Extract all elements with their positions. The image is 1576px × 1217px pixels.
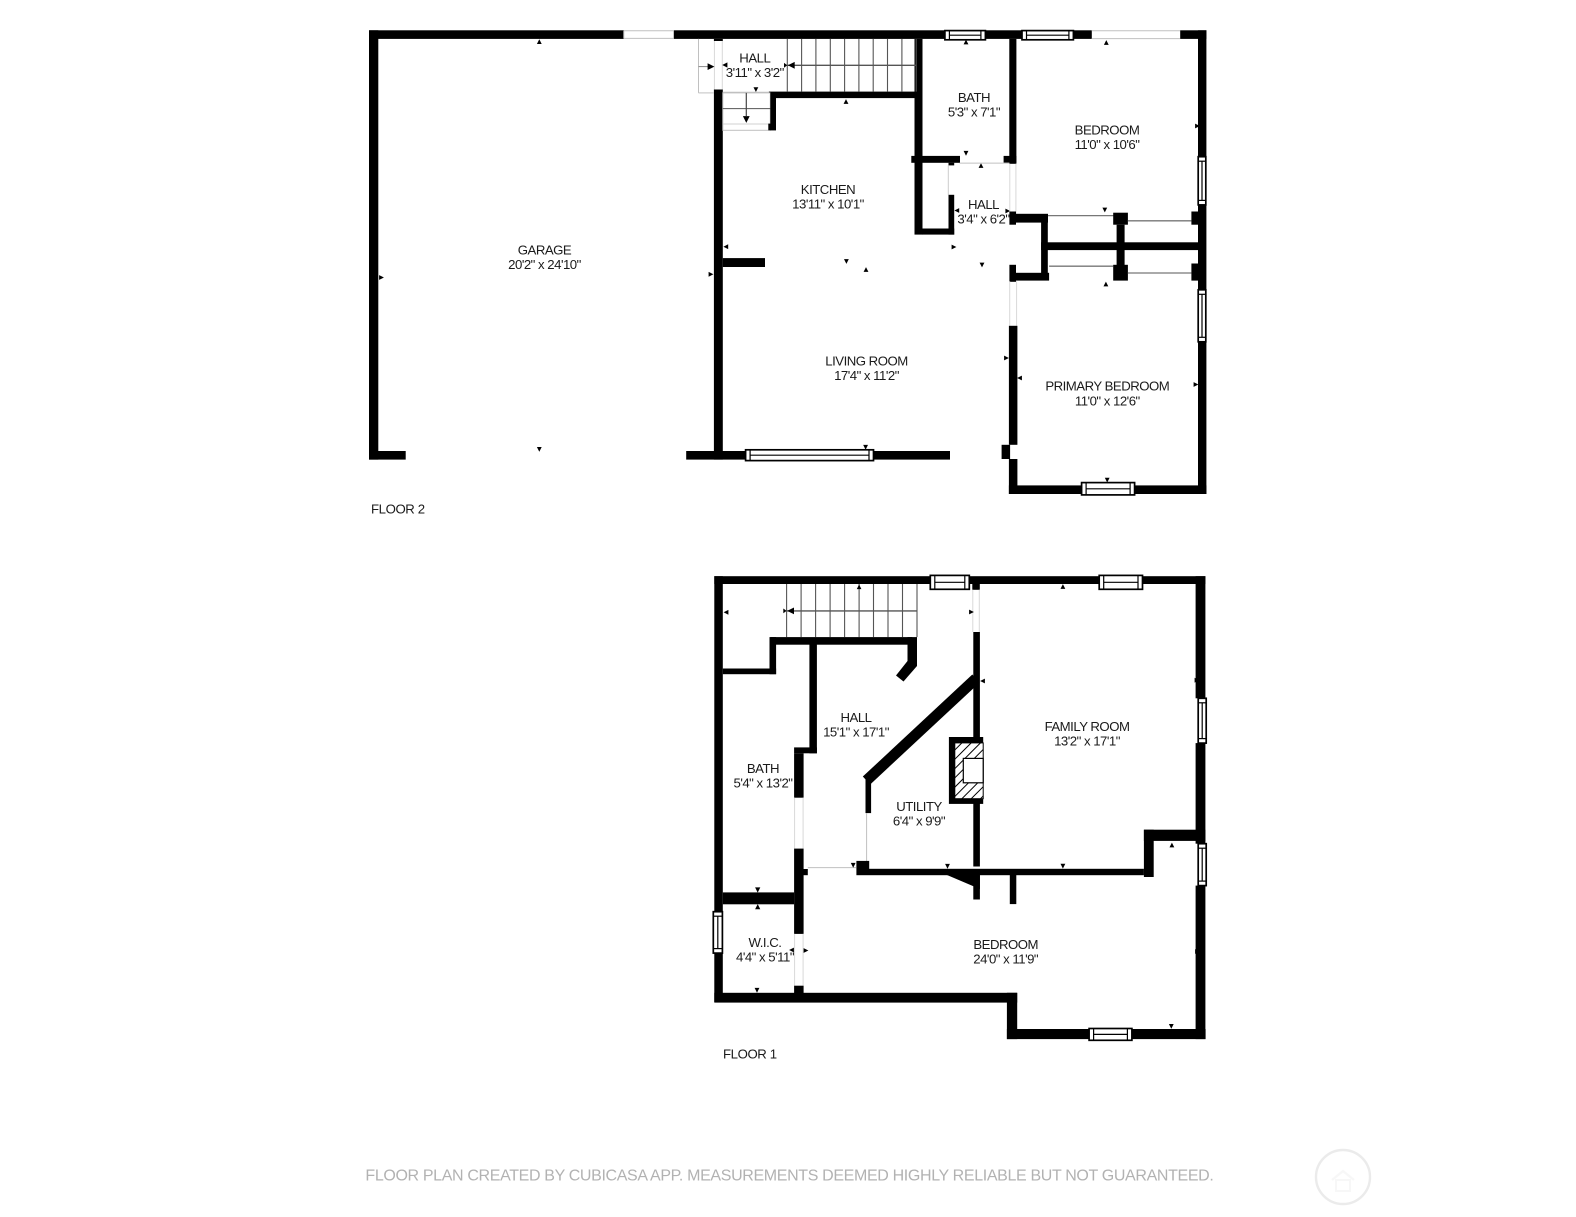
svg-text:5'4" x 13'2": 5'4" x 13'2" — [734, 776, 794, 791]
svg-text:3'11" x 3'2": 3'11" x 3'2" — [726, 65, 785, 80]
svg-text:PRIMARY BEDROOM: PRIMARY BEDROOM — [1045, 379, 1169, 394]
svg-text:GARAGE: GARAGE — [518, 243, 572, 258]
svg-text:4'4" x 5'11": 4'4" x 5'11" — [736, 950, 795, 965]
svg-text:FLOOR 1: FLOOR 1 — [723, 1047, 777, 1062]
svg-text:BATH: BATH — [747, 761, 779, 776]
svg-text:24'0" x 11'9": 24'0" x 11'9" — [973, 952, 1039, 967]
svg-text:11'0" x 12'6": 11'0" x 12'6" — [1075, 393, 1141, 408]
svg-text:20'2" x 24'10": 20'2" x 24'10" — [508, 257, 581, 272]
svg-text:17'4" x 11'2": 17'4" x 11'2" — [834, 368, 900, 383]
svg-text:FLOOR PLAN CREATED BY CUBICASA: FLOOR PLAN CREATED BY CUBICASA APP. MEAS… — [365, 1168, 1213, 1185]
svg-text:W.I.C.: W.I.C. — [749, 935, 782, 950]
svg-text:5'3" x 7'1": 5'3" x 7'1" — [948, 105, 1001, 120]
svg-text:FAMILY ROOM: FAMILY ROOM — [1045, 719, 1130, 734]
svg-text:HALL: HALL — [968, 197, 999, 212]
svg-text:BEDROOM: BEDROOM — [973, 937, 1038, 952]
svg-text:13'11" x 10'1": 13'11" x 10'1" — [792, 197, 864, 212]
svg-text:15'1" x 17'1": 15'1" x 17'1" — [823, 725, 890, 740]
svg-text:BEDROOM: BEDROOM — [1075, 122, 1140, 137]
svg-text:UTILITY: UTILITY — [896, 799, 942, 814]
svg-text:HALL: HALL — [841, 710, 872, 725]
svg-text:HALL: HALL — [739, 50, 770, 65]
svg-text:KITCHEN: KITCHEN — [801, 182, 855, 197]
svg-text:BATH: BATH — [958, 90, 990, 105]
svg-text:6'4" x 9'9": 6'4" x 9'9" — [893, 814, 946, 829]
svg-text:13'2" x 17'1": 13'2" x 17'1" — [1054, 734, 1121, 749]
svg-text:3'4" x 6'2": 3'4" x 6'2" — [957, 212, 1010, 227]
svg-text:LIVING ROOM: LIVING ROOM — [825, 354, 907, 369]
svg-text:11'0" x 10'6": 11'0" x 10'6" — [1075, 137, 1141, 152]
svg-text:FLOOR 2: FLOOR 2 — [371, 502, 425, 517]
